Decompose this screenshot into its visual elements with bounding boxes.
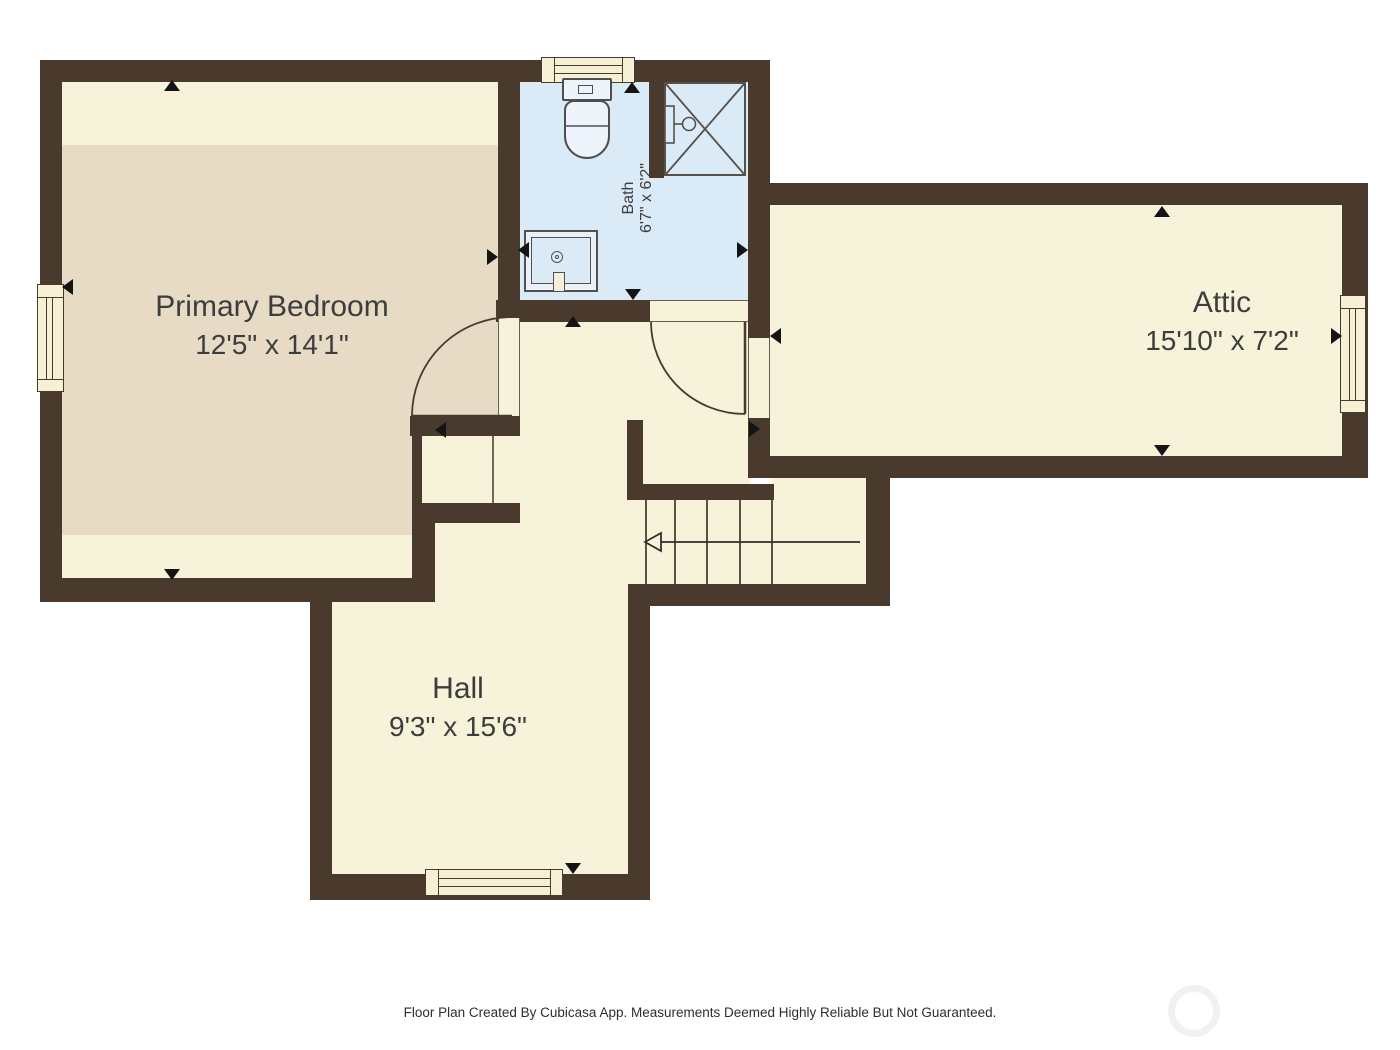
wall-bedroom-right-upper (498, 60, 520, 318)
toilet-button-icon (578, 85, 593, 94)
wall-stairs-bottom (628, 584, 890, 606)
wall-bedroom-right-thin (412, 436, 422, 503)
bath-door-opening (650, 300, 748, 322)
sink-drain-dot-icon (555, 255, 559, 259)
wall-bedroom-bottom (40, 578, 432, 602)
attic-doorway-opening (748, 338, 770, 418)
attic-window-icon (1340, 295, 1366, 413)
bath-dimensions: 6'7" x 6'2" (638, 163, 656, 233)
floor-plan-canvas: Primary Bedroom 12'5" x 14'1" Bath 6'7" … (0, 0, 1400, 1050)
toilet-bowl-icon (564, 100, 610, 159)
wall-shower-stub (649, 60, 664, 178)
shower-icon (664, 82, 746, 176)
primary-bedroom-name: Primary Bedroom (155, 288, 388, 326)
wall-stairs-stub (627, 420, 643, 484)
room-label-hall: Hall 9'3" x 15'6" (389, 670, 527, 745)
wall-closet-bottom (412, 503, 520, 523)
bedroom-window-icon (37, 284, 64, 392)
hall-upper-floor (498, 300, 750, 484)
wall-bedroom-top (40, 60, 520, 82)
wall-hall-right (628, 598, 650, 900)
room-label-attic: Attic 15'10" x 7'2" (1145, 284, 1299, 359)
attic-dimensions: 15'10" x 7'2" (1145, 322, 1299, 359)
hall-name: Hall (389, 670, 527, 708)
bath-name: Bath (620, 163, 638, 233)
room-label-primary-bedroom: Primary Bedroom 12'5" x 14'1" (155, 288, 388, 363)
stairs-treads-floor (645, 500, 772, 584)
cubicasa-watermark-icon (1168, 985, 1220, 1037)
primary-bedroom-dimensions: 12'5" x 14'1" (155, 326, 388, 363)
hall-window-icon (425, 869, 563, 896)
stairs-landing-floor (772, 478, 866, 584)
bedroom-door-opening (498, 318, 520, 416)
hall-dimensions: 9'3" x 15'6" (389, 708, 527, 745)
attic-name: Attic (1145, 284, 1299, 322)
wall-attic-top (753, 183, 1368, 205)
wall-stairs-right (866, 470, 890, 606)
wall-stairs-top (627, 484, 774, 500)
wall-closet-top (410, 416, 520, 436)
footer-disclaimer: Floor Plan Created By Cubicasa App. Meas… (404, 1005, 997, 1020)
sink-faucet-icon (553, 272, 565, 292)
wall-attic-bottom (753, 456, 1368, 478)
room-label-bath: Bath 6'7" x 6'2" (620, 163, 656, 233)
wall-hall-left (310, 578, 332, 900)
